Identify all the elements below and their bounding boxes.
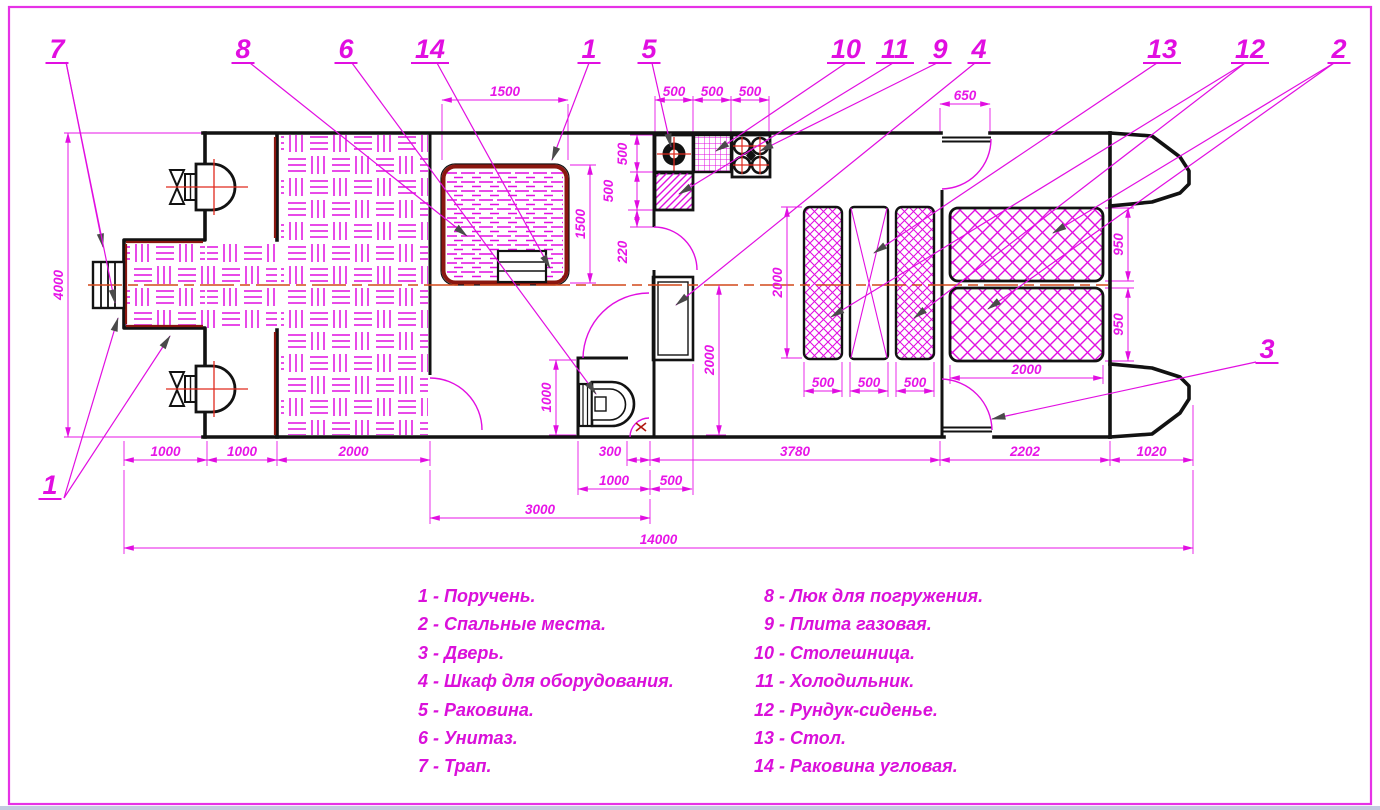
dimension-value: 2000	[337, 444, 369, 459]
legend-item-number: 14	[738, 752, 774, 780]
legend-dash: -	[774, 610, 790, 638]
dimension-value: 950	[1111, 233, 1126, 256]
berth-top	[950, 208, 1103, 281]
callout-number-1: 1	[42, 470, 57, 500]
dimension-value: 14000	[640, 532, 678, 547]
legend-item-label: Шкаф для оборудования.	[444, 667, 674, 695]
legend-item-label: Раковина угловая.	[790, 752, 958, 780]
dimension-value: 1020	[1136, 444, 1167, 459]
callout-leader	[64, 336, 170, 498]
dimension-value: 500	[812, 375, 835, 390]
outboard-motor-bottom	[166, 361, 248, 417]
floor-plan-svg: 1500500500500650200050050050010001000200…	[0, 0, 1380, 810]
legend-item-9: 9-Плита газовая.	[738, 610, 983, 638]
seat-locker-right	[896, 207, 934, 359]
door-arc-toilet-room	[583, 293, 649, 358]
bottom-edge-strip	[0, 806, 1380, 810]
door-arc-bulkhead	[430, 378, 482, 430]
door-x-mark	[636, 423, 646, 431]
legend-item-number: 3	[398, 639, 428, 667]
refrigerator	[655, 172, 693, 210]
legend-item-label: Поручень.	[444, 582, 536, 610]
legend-dash: -	[774, 582, 790, 610]
legend-column-left: 1-Поручень.2-Спальные места.3-Дверь.4-Шк…	[398, 582, 674, 781]
legend-dash: -	[428, 610, 444, 638]
dimension-value: 650	[954, 88, 977, 103]
berth-bottom	[950, 288, 1103, 361]
pontoon-bow-bottom	[1110, 364, 1189, 437]
callout-number-6: 6	[338, 34, 354, 64]
legend-item-label: Стол.	[790, 724, 846, 752]
dimension-value: 1000	[227, 444, 258, 459]
dimension-value: 220	[615, 240, 630, 264]
legend-dash: -	[428, 696, 444, 724]
legend-item-number: 11	[738, 667, 774, 695]
floor-plan-drawing: 1500500500500650200050050050010001000200…	[0, 0, 1380, 810]
legend-dash: -	[774, 639, 790, 667]
dimension-value: 1500	[490, 84, 521, 99]
dimension-value: 1000	[539, 382, 554, 413]
dimension-value: 500	[701, 84, 724, 99]
callout-number-1: 1	[581, 34, 596, 64]
dimension-value: 2000	[1010, 362, 1042, 377]
dimension-value: 500	[739, 84, 762, 99]
toilet	[579, 382, 634, 426]
dimension-value: 500	[858, 375, 881, 390]
legend-item-label: Раковина.	[444, 696, 534, 724]
legend-item-14: 14-Раковина угловая.	[738, 752, 983, 780]
legend-item-number: 1	[398, 582, 428, 610]
callout-number-7: 7	[49, 34, 66, 64]
door-leaf-bottom	[942, 428, 992, 432]
legend-item-label: Унитаз.	[444, 724, 518, 752]
callout-number-12: 12	[1235, 34, 1265, 64]
callout-leader	[679, 63, 893, 194]
legend-item-number: 4	[398, 667, 428, 695]
callout-number-5: 5	[641, 34, 657, 64]
legend-dash: -	[774, 667, 790, 695]
dimension-value: 2000	[770, 267, 785, 299]
dimension-value: 500	[663, 84, 686, 99]
callout-leader	[716, 63, 846, 151]
legend-item-number: 9	[738, 610, 774, 638]
legend-dash: -	[428, 667, 444, 695]
callout-number-4: 4	[970, 34, 986, 64]
callout-leader	[760, 63, 937, 151]
dimension-value: 500	[601, 179, 616, 202]
dimension-value: 1000	[150, 444, 181, 459]
legend-item-number: 13	[738, 724, 774, 752]
table	[850, 207, 888, 359]
callout-number-9: 9	[932, 34, 947, 64]
legend-item-3: 3-Дверь.	[398, 639, 674, 667]
callout-leader	[66, 62, 115, 303]
countertop	[694, 135, 731, 172]
legend-dash: -	[428, 752, 444, 780]
equipment-cabinet	[653, 277, 693, 360]
dimension-value: 3000	[525, 502, 556, 517]
legend-dash: -	[774, 696, 790, 724]
dimension-value: 4000	[51, 269, 66, 301]
legend-dash: -	[428, 582, 444, 610]
legend-item-label: Трап.	[444, 752, 492, 780]
pontoon-bow-top	[1110, 133, 1189, 206]
legend-item-11: 11-Холодильник.	[738, 667, 983, 695]
legend-item-label: Столешница.	[790, 639, 915, 667]
dimension-value: 2202	[1009, 444, 1041, 459]
legend-item-label: Дверь.	[444, 639, 504, 667]
door-leaf-top	[942, 138, 991, 142]
legend-column-right: 8-Люк для погружения.9-Плита газовая.10-…	[738, 582, 983, 781]
legend-item-2: 2-Спальные места.	[398, 610, 674, 638]
legend-item-number: 5	[398, 696, 428, 724]
callout-number-2: 2	[1330, 34, 1346, 64]
dimension-value: 950	[1111, 313, 1126, 336]
callout-leader	[64, 318, 118, 498]
dimension-value: 500	[660, 473, 683, 488]
dimension-value: 500	[615, 142, 630, 165]
legend-item-1: 1-Поручень.	[398, 582, 674, 610]
outboard-motor-top	[166, 159, 248, 215]
callout-number-10: 10	[831, 34, 861, 64]
callout-number-11: 11	[881, 34, 909, 64]
legend-dash: -	[774, 724, 790, 752]
legend-item-label: Холодильник.	[790, 667, 914, 695]
door-arc-berth-top	[942, 139, 991, 189]
callout-number-14: 14	[415, 34, 445, 64]
galley	[655, 135, 770, 210]
callout-number-13: 13	[1147, 34, 1177, 64]
dimension-value: 2000	[702, 344, 717, 376]
legend-dash: -	[428, 639, 444, 667]
callout-number-8: 8	[235, 34, 250, 64]
dimension-value: 1500	[573, 208, 588, 239]
legend-item-12: 12-Рундук-сиденье.	[738, 696, 983, 724]
callout-leader	[1053, 63, 1334, 233]
legend-item-4: 4-Шкаф для оборудования.	[398, 667, 674, 695]
hatch-steps	[498, 251, 546, 282]
legend-item-8: 8-Люк для погружения.	[738, 582, 983, 610]
door-arc-galley	[654, 227, 697, 270]
legend-item-label: Люк для погружения.	[790, 582, 983, 610]
legend-item-13: 13-Стол.	[738, 724, 983, 752]
dimension-value: 500	[904, 375, 927, 390]
legend-item-number: 2	[398, 610, 428, 638]
legend-item-label: Спальные места.	[444, 610, 606, 638]
legend-item-number: 10	[738, 639, 774, 667]
dimension-value: 300	[599, 444, 622, 459]
legend-dash: -	[428, 724, 444, 752]
legend-item-label: Рундук-сиденье.	[790, 696, 938, 724]
legend-item-6: 6-Унитаз.	[398, 724, 674, 752]
dimension-value: 3780	[780, 444, 811, 459]
callout-number-3: 3	[1259, 334, 1274, 364]
legend-item-7: 7-Трап.	[398, 752, 674, 780]
legend-item-10: 10-Столешница.	[738, 639, 983, 667]
legend-item-number: 7	[398, 752, 428, 780]
callout-leader	[988, 63, 1334, 309]
seat-locker-left	[804, 207, 842, 359]
dimension-value: 1000	[599, 473, 630, 488]
legend-dash: -	[774, 752, 790, 780]
legend-item-number: 8	[738, 582, 774, 610]
legend-item-number: 6	[398, 724, 428, 752]
door-arc-entrance	[942, 379, 992, 430]
legend-item-5: 5-Раковина.	[398, 696, 674, 724]
legend-item-label: Плита газовая.	[790, 610, 932, 638]
callout-leader	[552, 63, 589, 160]
legend-item-number: 12	[738, 696, 774, 724]
